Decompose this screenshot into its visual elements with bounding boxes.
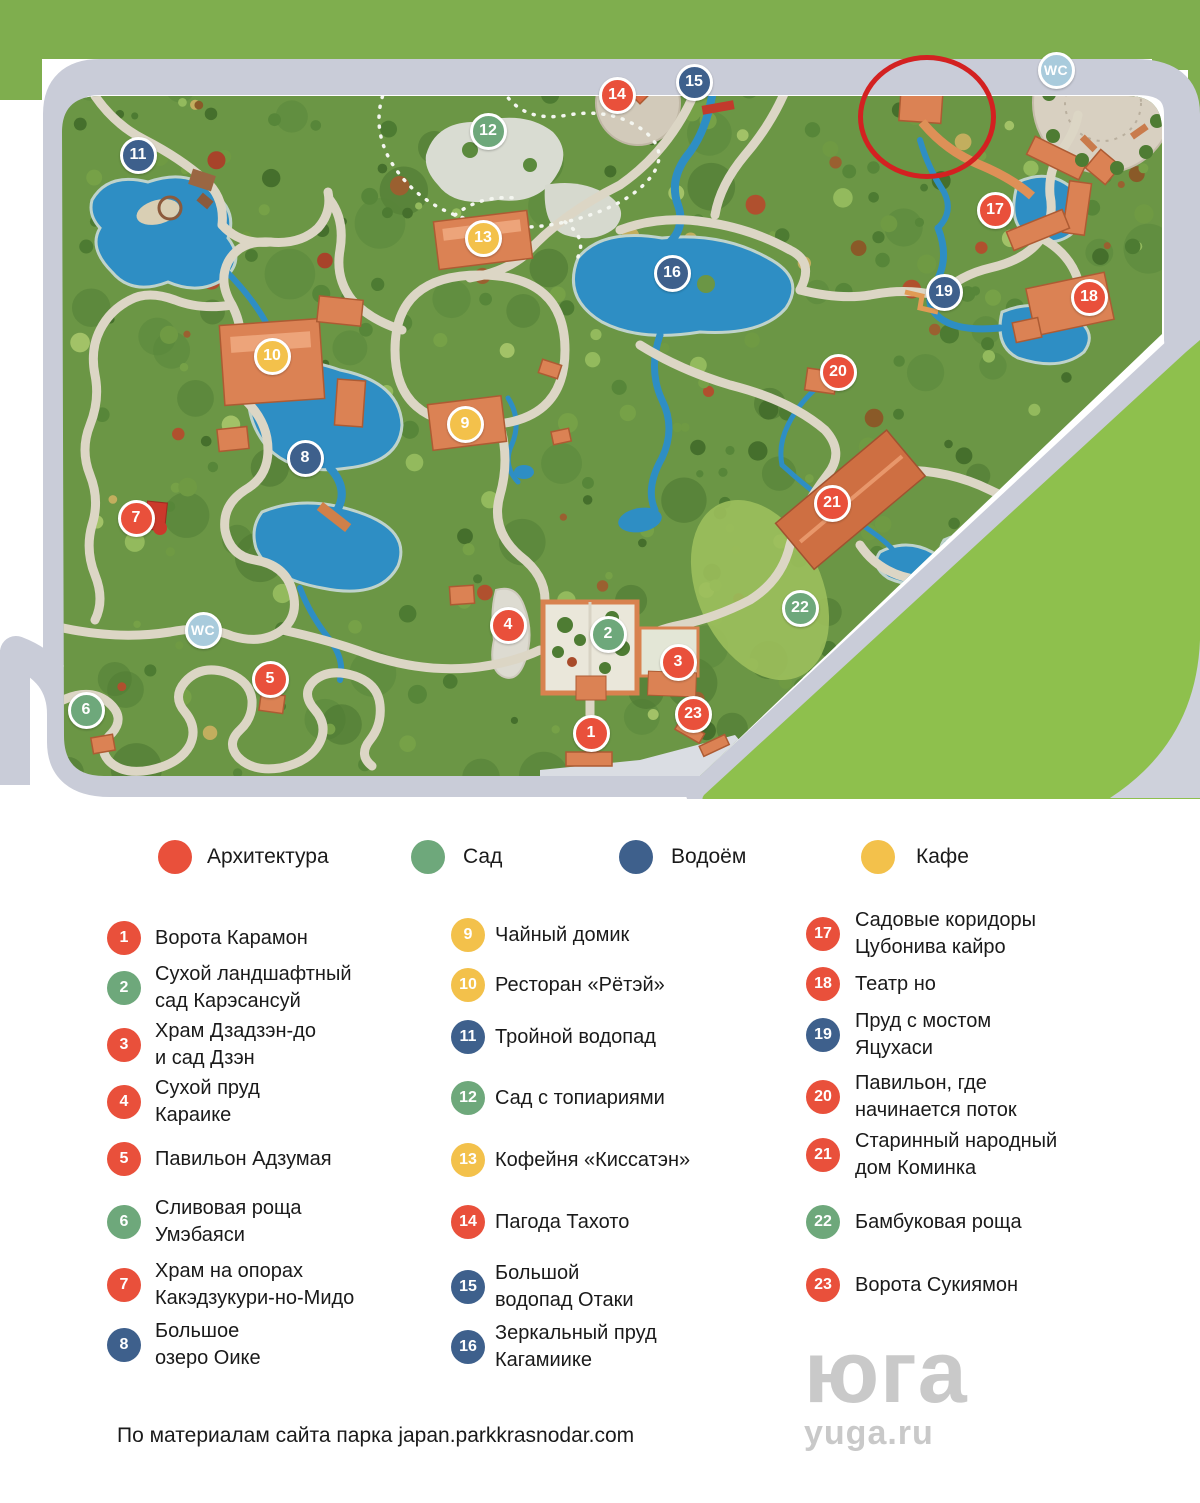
- highlight-circle-annotation: [858, 55, 996, 179]
- legend-item-label-7: Храм на опорахКакэдзукури-но-Мидо: [155, 1258, 354, 1312]
- map-marker-13: 13: [465, 220, 502, 257]
- legend-item-label-21: Старинный народныйдом Коминка: [855, 1128, 1057, 1182]
- legend-category-label: Сад: [463, 840, 502, 874]
- map-marker-17: 17: [977, 192, 1014, 229]
- legend-category-label: Кафе: [916, 840, 969, 874]
- legend-item-number-16: 16: [451, 1330, 485, 1364]
- yuga-logo: юга: [804, 1332, 968, 1412]
- legend-item-label-23: Ворота Сукиямон: [855, 1272, 1018, 1299]
- legend-item-label-13: Кофейня «Киссатэн»: [495, 1147, 690, 1174]
- legend-item-number-3: 3: [107, 1028, 141, 1062]
- legend-item-label-1: Ворота Карамон: [155, 925, 308, 952]
- legend-item-label-16: Зеркальный прудКагамиике: [495, 1320, 657, 1374]
- legend-item-number-5: 5: [107, 1142, 141, 1176]
- legend-item-number-8: 8: [107, 1328, 141, 1362]
- legend-item-label-15: Большойводопад Отаки: [495, 1260, 634, 1314]
- legend-item-label-14: Пагода Тахото: [495, 1209, 629, 1236]
- legend-item-label-22: Бамбуковая роща: [855, 1209, 1022, 1236]
- legend-item-label-6: Сливовая рощаУмэбаяси: [155, 1195, 302, 1249]
- yuga-watermark: юга yuga.ru: [804, 1332, 968, 1453]
- legend-item-number-23: 23: [806, 1268, 840, 1302]
- legend-item-number-19: 19: [806, 1018, 840, 1052]
- map-marker-12: 12: [470, 113, 507, 150]
- legend-item-number-6: 6: [107, 1205, 141, 1239]
- legend-item-number-13: 13: [451, 1143, 485, 1177]
- legend-item-number-12: 12: [451, 1081, 485, 1115]
- legend-item-number-7: 7: [107, 1268, 141, 1302]
- legend-item-label-5: Павильон Адзумая: [155, 1146, 332, 1173]
- park-map: 1234567891011121314151617181920212223WCW…: [0, 0, 1200, 810]
- map-marker-4: 4: [490, 607, 527, 644]
- legend-item-number-17: 17: [806, 917, 840, 951]
- legend-category-dot-cafe: [861, 840, 895, 874]
- map-marker-10: 10: [254, 338, 291, 375]
- legend-item-label-12: Сад с топиариями: [495, 1085, 665, 1112]
- map-marker-3: 3: [660, 644, 697, 681]
- map-marker-15: 15: [676, 64, 713, 101]
- legend-item-number-11: 11: [451, 1020, 485, 1054]
- legend-item-number-2: 2: [107, 971, 141, 1005]
- map-marker-8: 8: [287, 440, 324, 477]
- map-marker-16: 16: [654, 255, 691, 292]
- karesansui-garden: [543, 602, 637, 700]
- legend-category-label: Архитектура: [207, 840, 329, 874]
- legend-item-number-18: 18: [806, 967, 840, 1001]
- wc-marker: WC: [185, 612, 222, 649]
- lawn-top: [0, 0, 1200, 59]
- legend-item-label-9: Чайный домик: [495, 922, 629, 949]
- map-marker-14: 14: [599, 77, 636, 114]
- legend-item-label-10: Ресторан «Рётэй»: [495, 972, 665, 999]
- legend-item-label-2: Сухой ландшафтныйсад Карэсансуй: [155, 961, 352, 1015]
- legend-item-label-4: Сухой прудКараике: [155, 1075, 260, 1129]
- legend-category-dot-garden: [411, 840, 445, 874]
- map-marker-18: 18: [1071, 279, 1108, 316]
- legend-item-number-14: 14: [451, 1205, 485, 1239]
- legend-item-number-20: 20: [806, 1080, 840, 1114]
- map-marker-1: 1: [573, 715, 610, 752]
- wc-marker: WC: [1038, 52, 1075, 89]
- legend-item-number-15: 15: [451, 1270, 485, 1304]
- legend-item-label-3: Храм Дзадзэн-дои сад Дзэн: [155, 1018, 316, 1072]
- map-marker-6: 6: [68, 692, 105, 729]
- legend-item-number-4: 4: [107, 1085, 141, 1119]
- map-marker-20: 20: [820, 354, 857, 391]
- legend-item-number-10: 10: [451, 968, 485, 1002]
- legend-item-label-8: Большоеозеро Оике: [155, 1318, 261, 1372]
- map-marker-11: 11: [120, 137, 157, 174]
- legend-item-label-20: Павильон, гденачинается поток: [855, 1070, 1017, 1124]
- park-map-illustration: [0, 0, 1200, 810]
- map-marker-2: 2: [590, 616, 627, 653]
- legend-item-label-17: Садовые коридорыЦубонива кайро: [855, 907, 1036, 961]
- legend-item-label-18: Театр но: [855, 971, 936, 998]
- map-marker-9: 9: [447, 406, 484, 443]
- legend-item-number-21: 21: [806, 1138, 840, 1172]
- legend-item-number-9: 9: [451, 918, 485, 952]
- map-marker-5: 5: [252, 661, 289, 698]
- legend-category-label: Водоём: [671, 840, 746, 874]
- park-map-poster: 1234567891011121314151617181920212223WCW…: [0, 0, 1200, 1503]
- map-marker-21: 21: [814, 485, 851, 522]
- map-marker-19: 19: [926, 274, 963, 311]
- legend-category-dot-architecture: [158, 840, 192, 874]
- legend-item-label-19: Пруд с мостомЯцухаси: [855, 1008, 991, 1062]
- legend-item-label-11: Тройной водопад: [495, 1024, 656, 1051]
- legend-category-dot-water: [619, 840, 653, 874]
- map-marker-7: 7: [118, 500, 155, 537]
- map-marker-22: 22: [782, 590, 819, 627]
- map-marker-23: 23: [675, 696, 712, 733]
- credit-text: По материалам сайта парка japan.parkkras…: [117, 1424, 634, 1448]
- legend-item-number-22: 22: [806, 1205, 840, 1239]
- legend-item-number-1: 1: [107, 921, 141, 955]
